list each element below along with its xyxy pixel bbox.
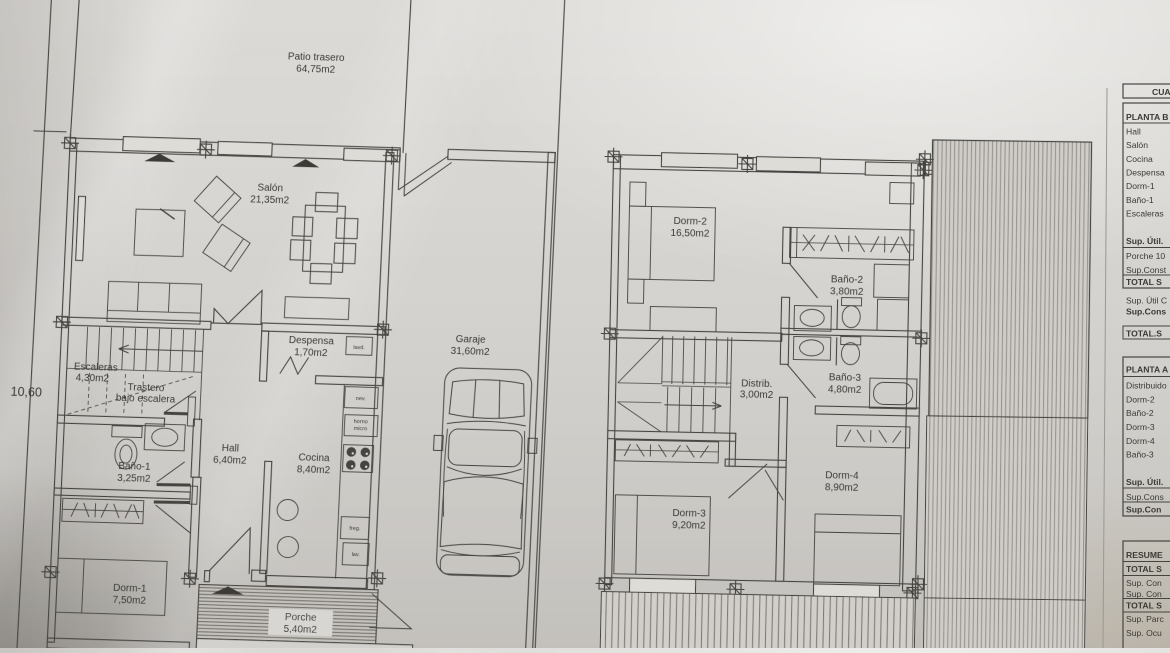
svg-text:Sup.Cons: Sup.Cons — [1126, 307, 1166, 317]
svg-text:64,75m2: 64,75m2 — [296, 64, 336, 76]
svg-text:Garaje: Garaje — [455, 334, 486, 346]
svg-text:CUAD: CUAD — [1152, 87, 1170, 97]
svg-text:8,40m2: 8,40m2 — [297, 464, 331, 476]
svg-text:Porche 10: Porche 10 — [1126, 251, 1165, 261]
svg-text:Patio trasero: Patio trasero — [288, 51, 346, 64]
svg-text:31,60m2: 31,60m2 — [450, 346, 490, 358]
svg-text:9,20m2: 9,20m2 — [672, 520, 706, 532]
svg-text:Despensa: Despensa — [289, 335, 335, 347]
svg-text:Sup.Cons: Sup.Cons — [1126, 492, 1164, 502]
svg-text:3,25m2: 3,25m2 — [117, 473, 151, 485]
svg-text:TOTAL.S: TOTAL.S — [1126, 329, 1162, 339]
svg-text:21,35m2: 21,35m2 — [250, 194, 290, 206]
svg-text:Sup. Ocu: Sup. Ocu — [1126, 628, 1162, 638]
svg-text:freg.: freg. — [349, 526, 361, 532]
svg-text:lav.: lav. — [351, 552, 360, 558]
svg-text:7,50m2: 7,50m2 — [112, 595, 146, 607]
svg-text:Sup. Útil C: Sup. Útil C — [1126, 296, 1167, 306]
svg-text:Cocina: Cocina — [1126, 154, 1153, 164]
svg-text:Dorm-3: Dorm-3 — [672, 508, 706, 520]
svg-text:Dorm-4: Dorm-4 — [1126, 436, 1155, 446]
svg-text:micro: micro — [354, 426, 368, 432]
svg-text:Sup. Útil.: Sup. Útil. — [1126, 476, 1163, 487]
svg-text:Dorm-4: Dorm-4 — [825, 470, 859, 482]
svg-text:6,40m2: 6,40m2 — [213, 455, 247, 467]
svg-text:3,00m2: 3,00m2 — [740, 389, 774, 401]
svg-text:8,90m2: 8,90m2 — [825, 482, 859, 494]
svg-text:Salón: Salón — [257, 183, 283, 195]
svg-text:3,80m2: 3,80m2 — [830, 286, 864, 298]
svg-text:Sup. Con: Sup. Con — [1126, 578, 1162, 588]
svg-text:Porche: Porche — [285, 612, 318, 624]
svg-text:Escaleras: Escaleras — [1126, 209, 1164, 219]
svg-text:5,40m2: 5,40m2 — [283, 624, 317, 636]
svg-text:TOTAL S: TOTAL S — [1126, 277, 1162, 287]
svg-text:horno: horno — [354, 419, 368, 425]
svg-text:Cocina: Cocina — [298, 452, 330, 464]
svg-text:Baño-2: Baño-2 — [1126, 408, 1154, 418]
svg-text:1,70m2: 1,70m2 — [294, 347, 328, 359]
svg-text:Dorm-2: Dorm-2 — [673, 216, 707, 228]
svg-text:Distrib.: Distrib. — [741, 378, 772, 390]
svg-text:Baño-1: Baño-1 — [1126, 195, 1154, 205]
svg-text:4,30m2: 4,30m2 — [75, 372, 109, 384]
svg-text:16,50m2: 16,50m2 — [670, 228, 710, 240]
svg-text:Salón: Salón — [1126, 140, 1148, 150]
svg-text:Hall: Hall — [221, 443, 239, 455]
svg-text:Dorm-2: Dorm-2 — [1126, 395, 1155, 405]
svg-text:Baño-3: Baño-3 — [829, 372, 862, 384]
svg-text:Dorm-1: Dorm-1 — [113, 583, 147, 595]
svg-text:Hall: Hall — [1126, 127, 1141, 137]
svg-text:Sup.Con: Sup.Con — [1126, 505, 1161, 515]
svg-text:Sup. Con: Sup. Con — [1126, 589, 1162, 599]
svg-text:lavd.: lavd. — [353, 345, 365, 351]
svg-text:TOTAL S: TOTAL S — [1126, 601, 1162, 611]
svg-text:TOTAL S: TOTAL S — [1126, 564, 1162, 574]
svg-text:Baño-2: Baño-2 — [831, 274, 864, 286]
svg-text:Sup. Parc: Sup. Parc — [1126, 614, 1164, 624]
svg-text:Baño-1: Baño-1 — [118, 461, 151, 473]
svg-text:nev.: nev. — [356, 396, 367, 402]
svg-text:Dorm-1: Dorm-1 — [1126, 181, 1155, 191]
svg-text:Sup.Const: Sup.Const — [1126, 265, 1167, 275]
svg-text:PLANTA A: PLANTA A — [1126, 365, 1168, 375]
svg-text:4,80m2: 4,80m2 — [828, 384, 862, 396]
svg-text:10,60: 10,60 — [10, 385, 42, 400]
svg-text:Baño-3: Baño-3 — [1126, 450, 1154, 460]
svg-text:Sup. Útil.: Sup. Útil. — [1126, 235, 1163, 246]
svg-text:PLANTA B: PLANTA B — [1126, 112, 1169, 122]
svg-text:RESUME: RESUME — [1126, 550, 1163, 560]
svg-text:Dorm-3: Dorm-3 — [1126, 422, 1155, 432]
svg-text:Distribuido: Distribuido — [1126, 381, 1167, 391]
svg-text:bajo escalera: bajo escalera — [115, 393, 175, 406]
svg-text:Despensa: Despensa — [1126, 168, 1165, 178]
